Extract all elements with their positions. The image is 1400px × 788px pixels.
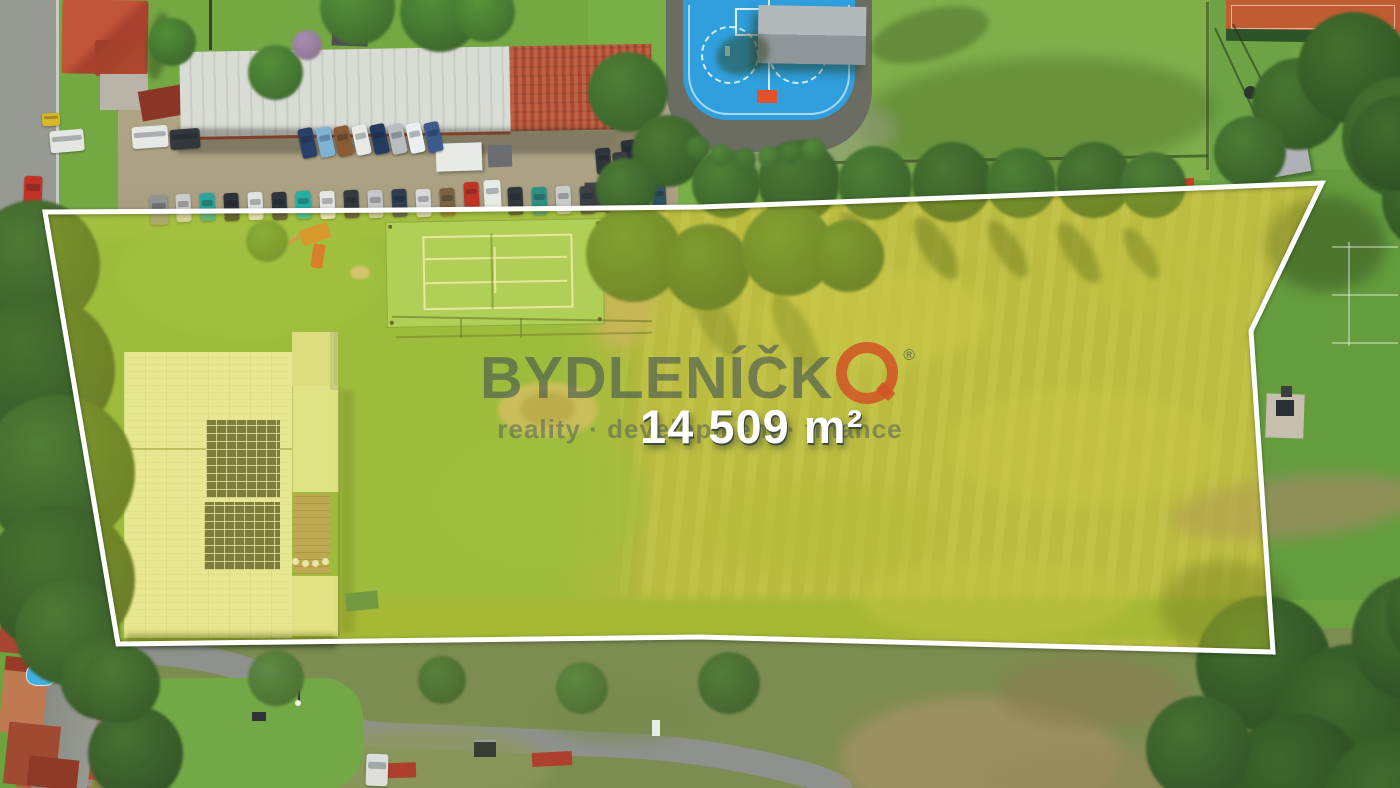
red-pipes <box>1124 178 1194 187</box>
registered-mark: ® <box>903 347 916 364</box>
hall-table-1 <box>292 558 299 565</box>
plot-tennis-court <box>385 218 605 328</box>
warehouse <box>179 44 652 137</box>
pool <box>26 664 56 686</box>
hall-annex-low <box>292 576 338 636</box>
house-red-roof-wing <box>95 40 147 76</box>
garage-shed <box>584 181 627 212</box>
left-road <box>0 0 58 345</box>
tennis-post-3 <box>390 321 394 325</box>
field-line-h2 <box>1332 294 1398 296</box>
tennis-post-2 <box>596 221 600 225</box>
solar-array-2 <box>204 502 280 570</box>
warehouse-tile-roof <box>509 44 652 131</box>
warehouse-metal-roof <box>179 46 510 140</box>
pavilion <box>758 5 867 65</box>
orange-court-lines <box>1231 5 1395 29</box>
fence-post-a <box>460 318 462 338</box>
hall-upper-wing <box>292 332 334 386</box>
green-dumpster <box>345 590 379 611</box>
hall-table-3 <box>312 560 319 567</box>
curve-lawn <box>128 678 363 788</box>
brand-o-magnifier-icon <box>836 342 898 404</box>
fire-pit <box>1244 86 1257 99</box>
field-line-h3 <box>1332 342 1398 344</box>
sand-patch <box>350 266 370 279</box>
bus-shelter <box>474 740 496 757</box>
lamp-head <box>295 700 301 706</box>
brand-o-tail <box>876 382 896 402</box>
hall-table-4 <box>322 558 329 565</box>
tennis-inner-court <box>422 234 573 311</box>
hall-annex <box>292 386 339 492</box>
red-crosswalk-1 <box>376 762 416 778</box>
court-circle-left <box>701 26 759 84</box>
warehouse-canopy-shadow <box>178 128 658 154</box>
hall-walkway <box>330 332 338 390</box>
solar-array-1 <box>206 420 280 498</box>
dark-shed <box>332 21 369 46</box>
field-line-h1 <box>1332 246 1398 248</box>
court-red-square <box>757 90 777 103</box>
monument-cap <box>1281 386 1292 397</box>
info-sign <box>252 712 266 721</box>
tennis-post-1 <box>388 225 392 229</box>
white-sign <box>652 720 660 736</box>
blue-tarp <box>1241 143 1262 158</box>
paddock-fence-right <box>1206 2 1209 170</box>
monument-object <box>1276 400 1294 416</box>
fence-post-b <box>520 318 522 338</box>
green-box <box>634 186 650 210</box>
bl-roof-1 <box>0 612 48 657</box>
aerial-photo: BYDLENÍČK® reality · development · finan… <box>0 0 1400 788</box>
white-canopy-building <box>436 142 483 172</box>
area-label: 14 509 m² <box>640 399 863 454</box>
utility-pole <box>209 0 212 50</box>
left-road-curb <box>56 0 59 345</box>
hall-table-2 <box>302 560 309 567</box>
gray-container <box>488 145 513 168</box>
bl-roof-4 <box>27 755 80 788</box>
hall-bottom-shadow <box>126 634 336 648</box>
court-figure-left <box>725 46 730 56</box>
red-crosswalk-2 <box>532 751 573 767</box>
